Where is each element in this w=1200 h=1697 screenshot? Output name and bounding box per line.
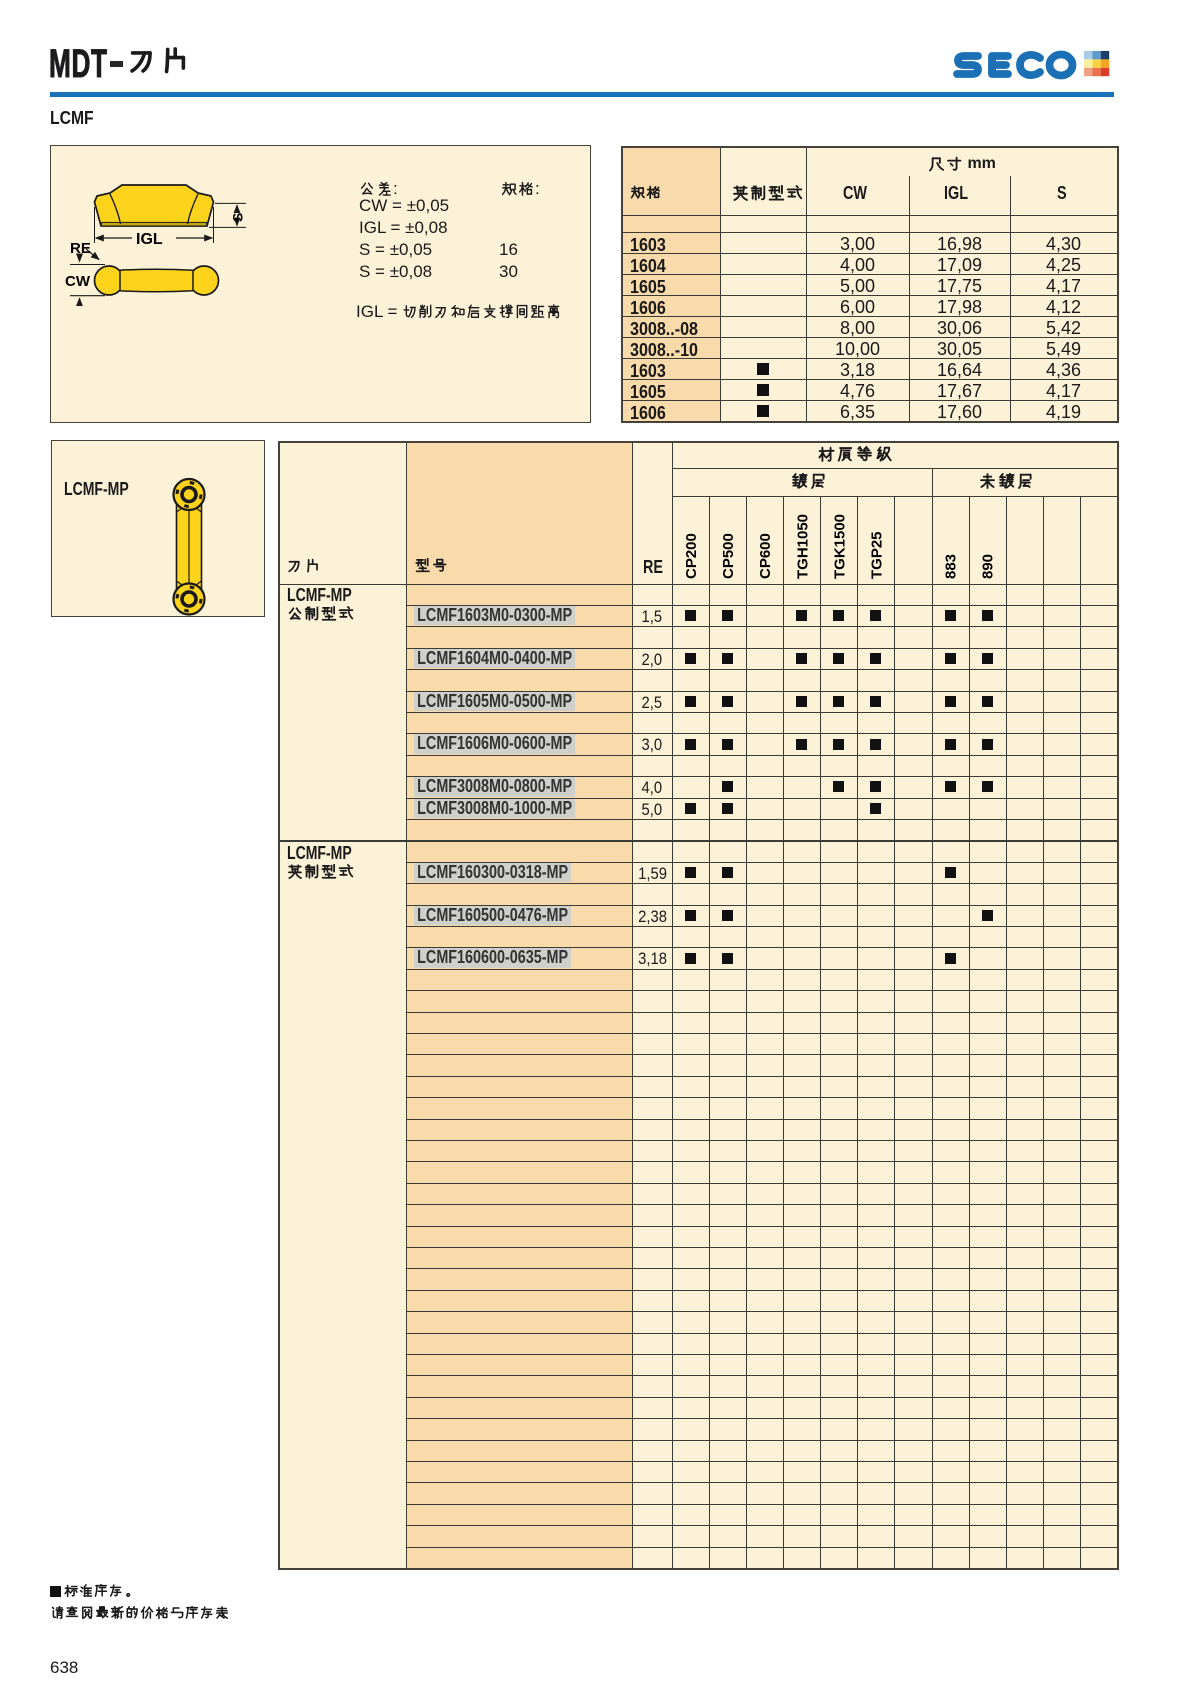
svg-text:RE: RE — [70, 240, 91, 257]
svg-text:S: S — [230, 213, 246, 222]
svg-text:890: 890 — [980, 554, 997, 579]
svg-text:CP200: CP200 — [683, 533, 700, 579]
svg-text:IGL: IGL — [136, 231, 163, 248]
svg-text:883: 883 — [943, 554, 960, 579]
svg-text:CP600: CP600 — [757, 533, 774, 579]
svg-text:CP500: CP500 — [720, 533, 737, 579]
svg-text:TGP25: TGP25 — [868, 531, 885, 579]
svg-text:TGH1050: TGH1050 — [794, 514, 811, 579]
svg-text:TGK1500: TGK1500 — [831, 514, 848, 579]
svg-text:CW: CW — [65, 273, 91, 290]
